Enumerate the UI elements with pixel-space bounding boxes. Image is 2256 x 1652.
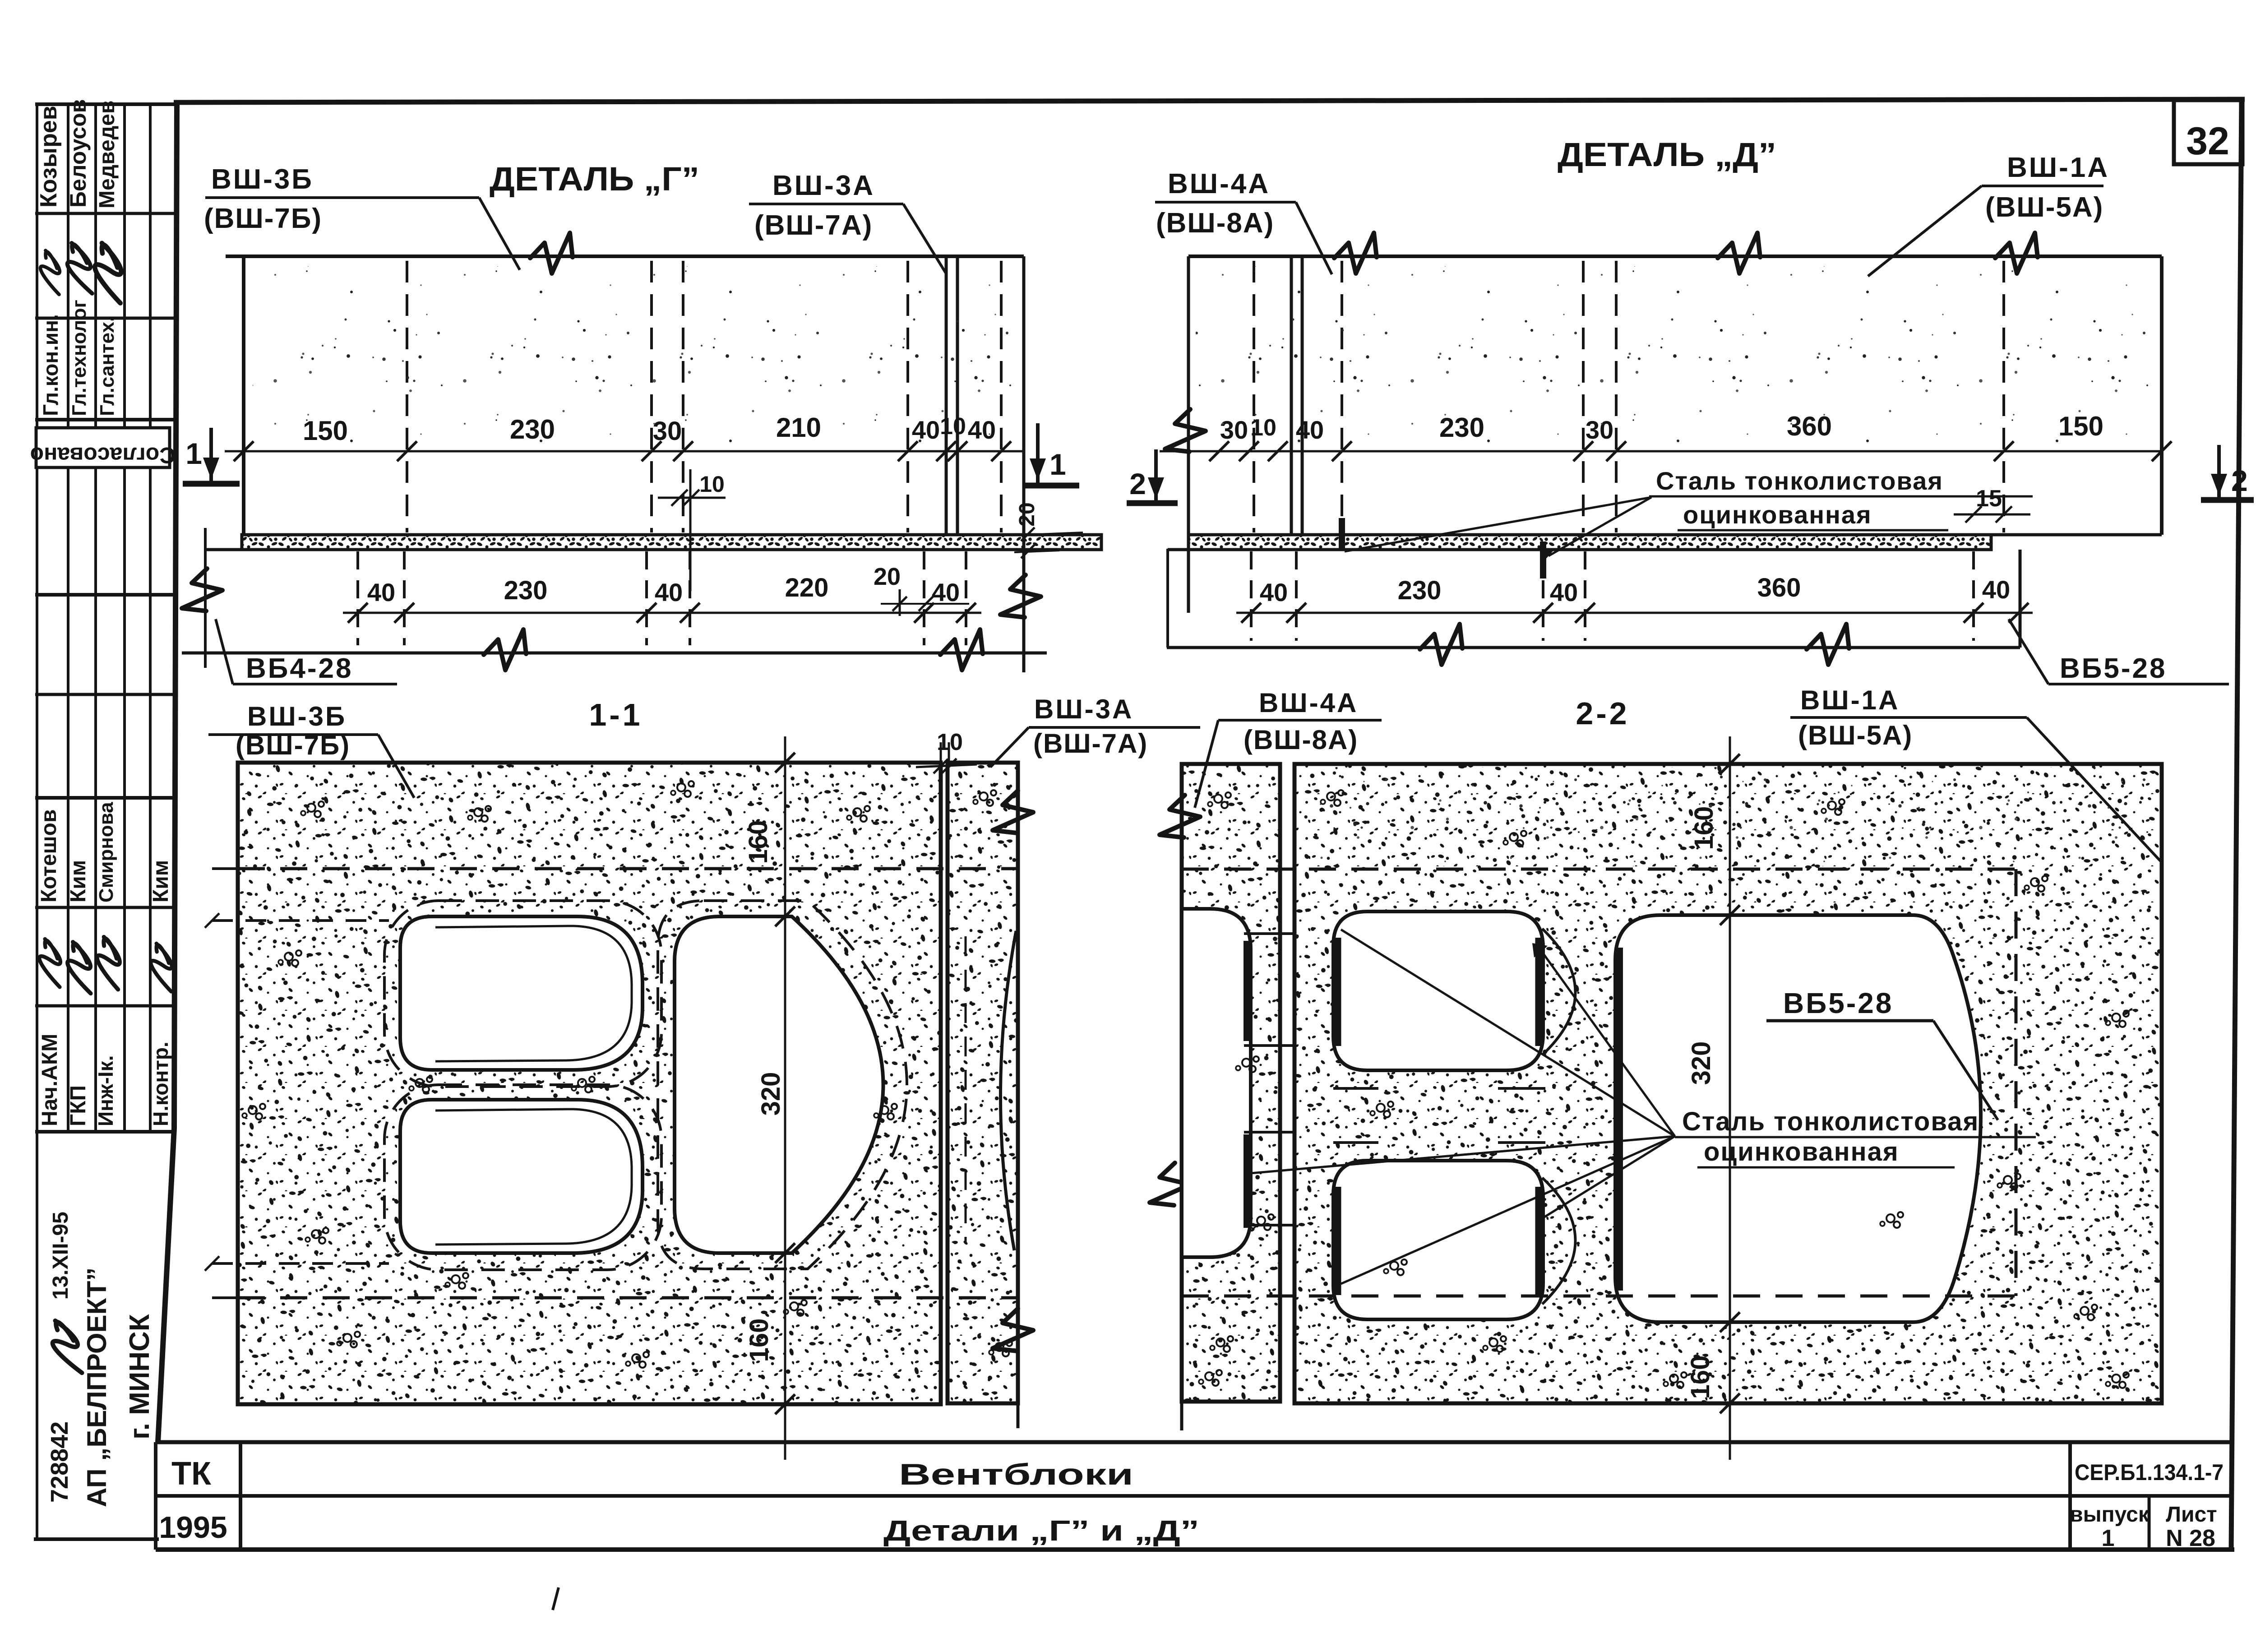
svg-text:40: 40 (1550, 578, 1578, 606)
svg-text:ДЕТАЛЬ „Г”: ДЕТАЛЬ „Г” (490, 160, 699, 198)
svg-text:ГКП: ГКП (66, 1085, 90, 1126)
svg-text:40: 40 (1260, 578, 1288, 606)
svg-text:Котешов: Котешов (37, 810, 61, 902)
svg-text:160: 160 (1686, 1356, 1715, 1399)
svg-text:Вентблоки: Вентблоки (899, 1458, 1133, 1491)
svg-text:N 28: N 28 (2166, 1525, 2215, 1551)
svg-text:Гл.сантех.: Гл.сантех. (96, 316, 118, 416)
svg-text:выпуск: выпуск (2070, 1503, 2150, 1527)
svg-text:Сталь тонколистовая: Сталь тонколистовая (1656, 467, 1943, 495)
svg-text:40: 40 (655, 578, 683, 606)
svg-text:1-1: 1-1 (589, 697, 643, 732)
svg-text:220: 220 (785, 573, 829, 602)
svg-text:ВШ-3А: ВШ-3А (772, 170, 875, 201)
svg-text:160: 160 (744, 820, 773, 864)
svg-text:1: 1 (2102, 1525, 2115, 1551)
svg-text:Белоусов: Белоусов (65, 99, 91, 208)
svg-text:ВШ-3Б: ВШ-3Б (247, 701, 347, 731)
svg-text:1995: 1995 (159, 1510, 227, 1545)
svg-text:320: 320 (1687, 1041, 1716, 1085)
svg-text:230: 230 (1398, 576, 1442, 605)
svg-text:(ВШ-5А): (ВШ-5А) (1798, 720, 1913, 750)
svg-text:ТК: ТК (171, 1456, 212, 1492)
svg-text:ДЕТАЛЬ „Д”: ДЕТАЛЬ „Д” (1558, 136, 1776, 173)
svg-text:40: 40 (367, 578, 395, 606)
svg-text:2: 2 (1129, 467, 1146, 500)
svg-text:(ВШ-7А): (ВШ-7А) (754, 210, 873, 241)
svg-text:20: 20 (1015, 502, 1039, 526)
svg-text:Детали „Г” и „Д”: Детали „Г” и „Д” (883, 1514, 1199, 1547)
svg-text:1: 1 (185, 437, 202, 470)
svg-text:Сталь тонколистовая: Сталь тонколистовая (1682, 1107, 1979, 1136)
svg-text:20: 20 (874, 563, 901, 590)
svg-text:(ВШ-8А): (ВШ-8А) (1156, 208, 1274, 239)
svg-text:ВБ5-28: ВБ5-28 (2060, 653, 2167, 684)
svg-text:40: 40 (1982, 575, 2010, 604)
svg-text:ВШ-3Б: ВШ-3Б (211, 164, 314, 195)
svg-text:Нач.АКМ: Нач.АКМ (38, 1034, 62, 1126)
svg-text:Смирнова: Смирнова (95, 802, 117, 902)
svg-text:ВБ5-28: ВБ5-28 (1783, 987, 1893, 1019)
svg-text:1: 1 (1049, 448, 1066, 481)
svg-text:(ВШ-7Б): (ВШ-7Б) (236, 730, 350, 760)
svg-text:ВШ-4А: ВШ-4А (1168, 168, 1270, 199)
svg-text:оцинкованная: оцинкованная (1704, 1137, 1899, 1166)
svg-text:230: 230 (504, 576, 548, 605)
svg-text:Гл.технолог: Гл.технолог (68, 300, 90, 416)
svg-text:728842: 728842 (46, 1421, 73, 1503)
svg-text:ВШ-1А: ВШ-1А (1800, 685, 1900, 715)
svg-text:40: 40 (932, 578, 960, 606)
svg-text:(ВШ-8А): (ВШ-8А) (1244, 725, 1358, 755)
svg-text:160: 160 (744, 1319, 774, 1362)
svg-text:ВШ-3А: ВШ-3А (1034, 694, 1133, 724)
svg-text:Инж-Iк.: Инж-Iк. (94, 1055, 117, 1126)
svg-text:32: 32 (2186, 120, 2229, 163)
svg-text:Гл.кон.ин.: Гл.кон.ин. (39, 314, 62, 416)
svg-text:2-2: 2-2 (1576, 696, 1629, 731)
svg-text:13.ХII-95: 13.ХII-95 (49, 1212, 73, 1300)
svg-text:Ким: Ким (66, 860, 90, 902)
svg-text:Согласовано: Согласовано (30, 443, 176, 468)
svg-text:360: 360 (1757, 573, 1801, 602)
svg-text:(ВШ-7А): (ВШ-7А) (1033, 728, 1148, 759)
svg-text:10: 10 (699, 472, 725, 497)
svg-text:(ВШ-5А): (ВШ-5А) (1985, 192, 2103, 223)
svg-text:СЕР.Б1.134.1-7: СЕР.Б1.134.1-7 (2075, 1460, 2224, 1485)
svg-text:АП „БЕЛПРОЕКТ”: АП „БЕЛПРОЕКТ” (82, 1268, 112, 1507)
svg-text:Медведев: Медведев (95, 101, 119, 208)
svg-text:320: 320 (756, 1072, 786, 1116)
svg-text:Ким: Ким (149, 860, 173, 902)
svg-text:ВШ-1А: ВШ-1А (2007, 152, 2109, 183)
svg-text:(ВШ-7Б): (ВШ-7Б) (204, 203, 322, 234)
svg-text:Козырев: Козырев (36, 106, 62, 208)
svg-text:г. МИНСК: г. МИНСК (124, 1314, 155, 1439)
svg-text:ВШ-4А: ВШ-4А (1259, 688, 1358, 718)
svg-text:оцинкованная: оцинкованная (1683, 500, 1872, 529)
svg-text:ВБ4-28: ВБ4-28 (246, 653, 353, 684)
svg-text:Лист: Лист (2166, 1503, 2217, 1527)
svg-text:2: 2 (2231, 464, 2248, 497)
svg-text:Н.контр.: Н.контр. (149, 1041, 172, 1126)
